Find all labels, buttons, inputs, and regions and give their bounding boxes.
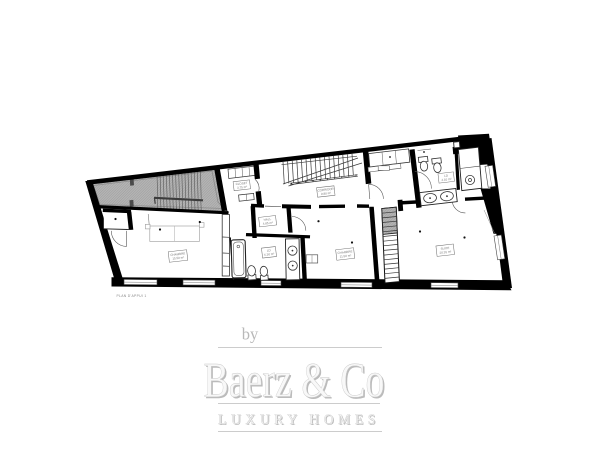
svg-text:PLAN D'APPUI 1: PLAN D'APPUI 1 <box>117 294 147 298</box>
svg-text:by: by <box>242 325 259 344</box>
svg-text:Baerz & Co: Baerz & Co <box>204 352 385 408</box>
svg-text:LUXURY HOMES: LUXURY HOMES <box>218 412 380 428</box>
